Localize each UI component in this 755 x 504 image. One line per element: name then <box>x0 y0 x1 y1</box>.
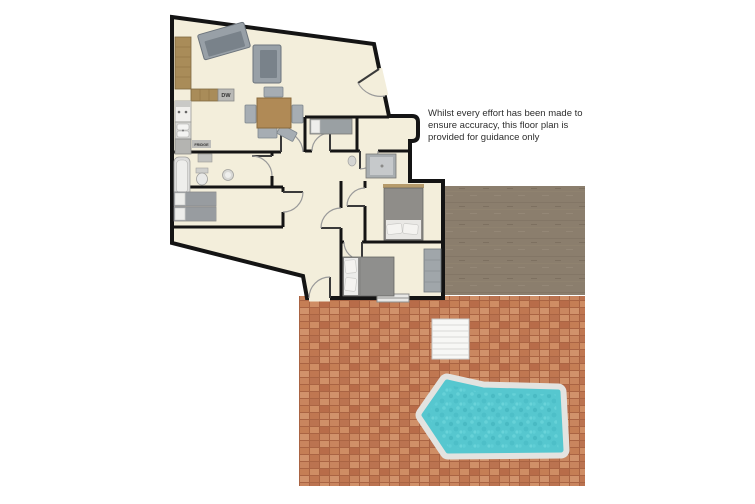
headboard <box>383 184 424 188</box>
fridge-label: FRIDGE <box>194 143 209 147</box>
building-outline <box>172 17 443 298</box>
ground-area <box>445 186 585 295</box>
dining-chair <box>258 128 277 138</box>
building: DW FRIDGE <box>172 17 443 302</box>
swimming-pool <box>424 382 561 451</box>
oven <box>175 101 191 122</box>
dining-table <box>257 98 291 128</box>
pool-water <box>424 382 561 451</box>
dining-chair <box>264 87 283 97</box>
disclaimer-text: Whilst every effort has been made to ens… <box>428 108 606 144</box>
twin-bed-1 <box>174 192 216 206</box>
dishwasher: DW <box>218 89 234 101</box>
floor-plan-drawing: DW FRIDGE <box>0 0 755 504</box>
double-bed-lower <box>343 257 394 296</box>
dining-chair <box>245 105 256 123</box>
dining-chair <box>292 105 303 123</box>
kitchen-sink <box>175 122 191 139</box>
wash-basin <box>223 170 234 181</box>
toilet <box>196 168 208 185</box>
single-bed <box>310 119 352 134</box>
sofa-vertical <box>253 45 281 83</box>
floor-plan-page: DW FRIDGE <box>0 0 755 504</box>
double-bed-upper <box>383 184 424 240</box>
shower-drain <box>381 165 384 168</box>
shower-basin <box>348 156 356 166</box>
twin-bed-2 <box>174 207 216 221</box>
cabinet <box>198 154 212 162</box>
dishwasher-label: DW <box>221 93 231 99</box>
wardrobe <box>424 249 441 292</box>
garden-steps <box>432 319 469 359</box>
